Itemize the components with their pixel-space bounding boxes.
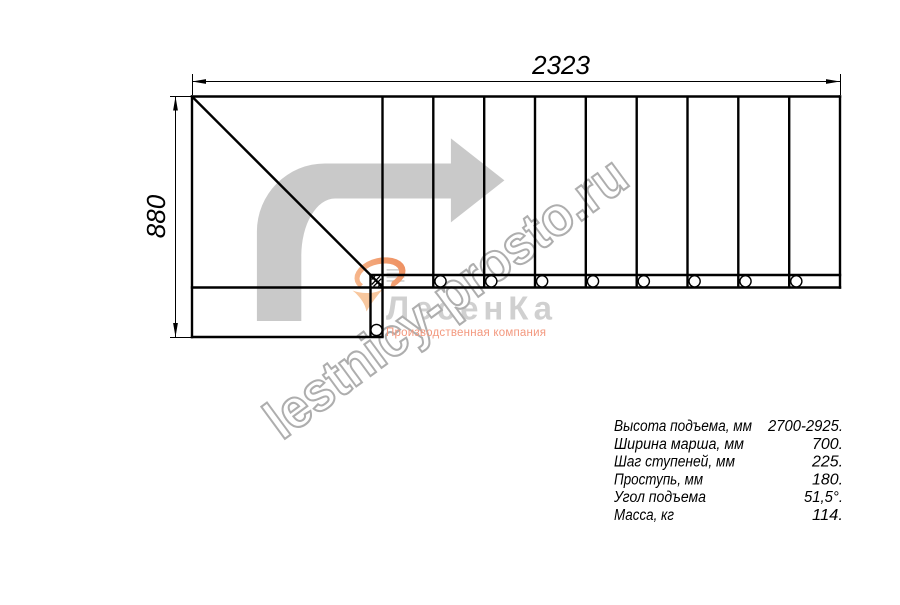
svg-text:2700-2925.: 2700-2925. [767, 418, 843, 435]
svg-text:Угол подъема: Угол подъема [613, 489, 706, 506]
svg-text:225.: 225. [811, 454, 843, 471]
svg-text:2323: 2323 [531, 50, 590, 80]
svg-text:Ширина марша, мм: Ширина марша, мм [614, 436, 744, 453]
svg-text:51,5°.: 51,5°. [804, 489, 843, 506]
svg-text:Проступь, мм: Проступь, мм [614, 471, 703, 488]
svg-text:180.: 180. [812, 471, 843, 488]
svg-text:Высота подъема, мм: Высота подъема, мм [614, 418, 752, 435]
svg-text:Масса, кг: Масса, кг [614, 507, 674, 524]
svg-text:Производственная компания: Производственная компания [386, 327, 546, 339]
svg-text:700.: 700. [812, 436, 843, 453]
svg-text:880: 880 [141, 194, 171, 238]
svg-text:Шаг ступеней, мм: Шаг ступеней, мм [614, 454, 735, 471]
svg-text:114.: 114. [812, 507, 843, 524]
